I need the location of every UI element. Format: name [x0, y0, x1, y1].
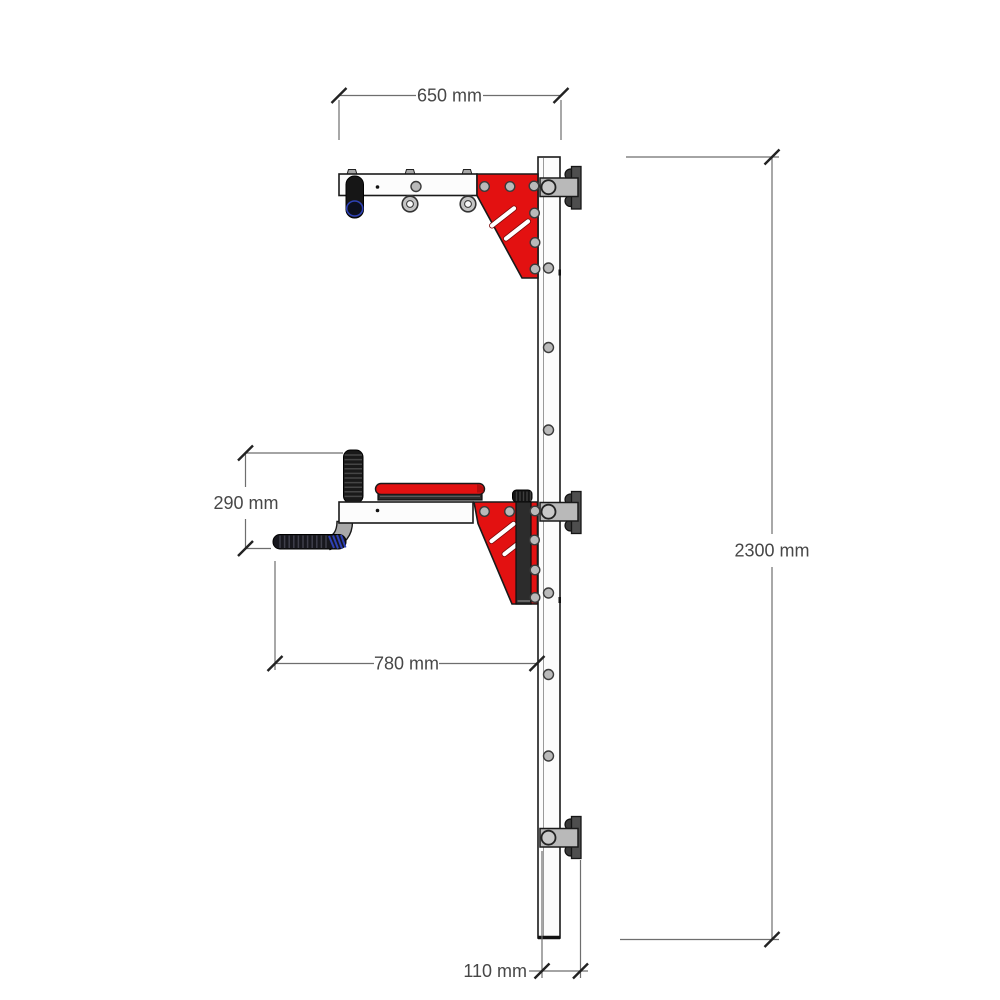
pullup-gusset: [477, 174, 540, 278]
pullup-arm-assembly: [339, 170, 540, 279]
dim-290-label: 290 mm: [213, 493, 278, 513]
post-weld-mark: [559, 270, 562, 276]
dip-arm: [339, 502, 473, 523]
post-body: [538, 157, 560, 938]
wall-post: [538, 157, 561, 938]
dim-2300-label: 2300 mm: [734, 541, 809, 561]
forearm-foam-bar: [273, 535, 346, 550]
side-plate-edge: [513, 490, 533, 604]
arm-hole: [411, 182, 421, 192]
dimension-mount-depth: 110 mm: [463, 851, 588, 981]
arm-pin-hole: [376, 185, 380, 189]
pullup-grip: [346, 176, 364, 218]
vertical-grip: [344, 450, 364, 503]
dimension-overall-height: 2300 mm: [620, 150, 810, 948]
mount-bolt: [542, 180, 556, 194]
dimension-arm-length: 650 mm: [332, 86, 569, 141]
dip-assembly: [273, 450, 540, 604]
dim-110-label: 110 mm: [463, 961, 527, 981]
mount-bolt: [542, 831, 556, 845]
drawing-svg: 650 mm 2300 mm 290 mm 780 mm 110 m: [0, 0, 1000, 1000]
post-weld-mark: [559, 597, 562, 603]
ab-pad: [376, 484, 485, 501]
eye-ring: [402, 196, 418, 212]
eye-ring: [460, 196, 476, 212]
mount-bolt: [542, 505, 556, 519]
arm-pin-hole: [376, 509, 380, 513]
dim-650-label: 650 mm: [417, 86, 482, 106]
dim-780-label: 780 mm: [374, 654, 439, 674]
pad-cushion: [376, 484, 485, 495]
dip-gusset: [474, 490, 540, 604]
technical-drawing: 650 mm 2300 mm 290 mm 780 mm 110 m: [0, 0, 1000, 1000]
grip-end-cap: [347, 201, 363, 216]
